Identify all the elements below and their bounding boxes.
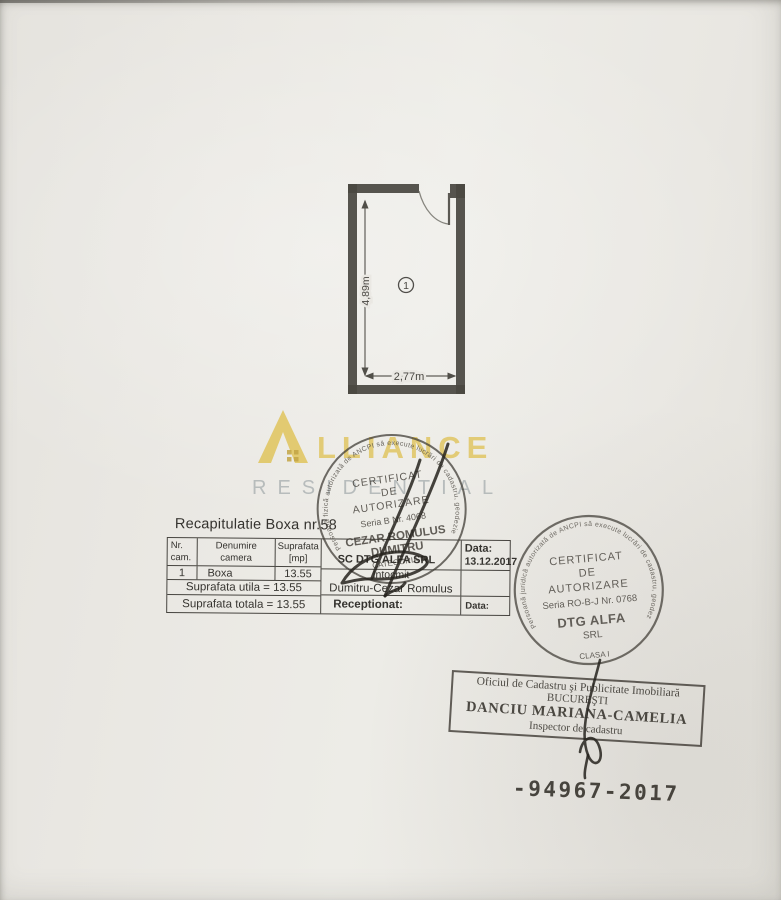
cell-room-name: Boxa [197,566,275,580]
scanned-cadastral-document: LLIANCE RESIDENTIAL 4,89m 2,77m [0,0,781,900]
signature-inspector [548,652,638,782]
recap-title: Recapitulatie Boxa nr.58 [175,516,337,533]
recap-table-left: Nr. cam. Denumire camera Suprafata [mp] … [167,538,322,614]
stamp-name2: SRL [583,629,604,642]
cell-room-nr: 1 [167,566,197,579]
alliance-roof-logo-icon [256,406,310,466]
dimension-lines [365,201,455,376]
stamp-title1: CERTIFICAT [549,550,624,568]
useful-area-row: Suprafata utila = 13.55 [167,580,320,595]
col-header-denumire: Denumire camera [198,538,276,566]
total-area-row: Suprafata totala = 13.55 [167,595,320,614]
dimension-width-label: 2,77m [394,371,425,383]
photo-top-edge [0,0,781,3]
signature-surveyor [330,433,470,608]
dimension-height-label: 4,89m [360,276,372,305]
stamp-name1: DTG ALFA [557,610,627,631]
cell-room-area: 13.55 [275,567,320,580]
room-number-label: 1 [399,278,414,293]
col-header-suprafata: Suprafata [mp] [276,539,321,566]
floor-plan: 4,89m 2,77m 1 [342,178,474,404]
stamp-title2: DE [578,566,596,579]
svg-text:1: 1 [403,280,409,292]
col-header-nr-cam: Nr. cam. [168,538,198,565]
door-swing-icon [419,191,449,225]
